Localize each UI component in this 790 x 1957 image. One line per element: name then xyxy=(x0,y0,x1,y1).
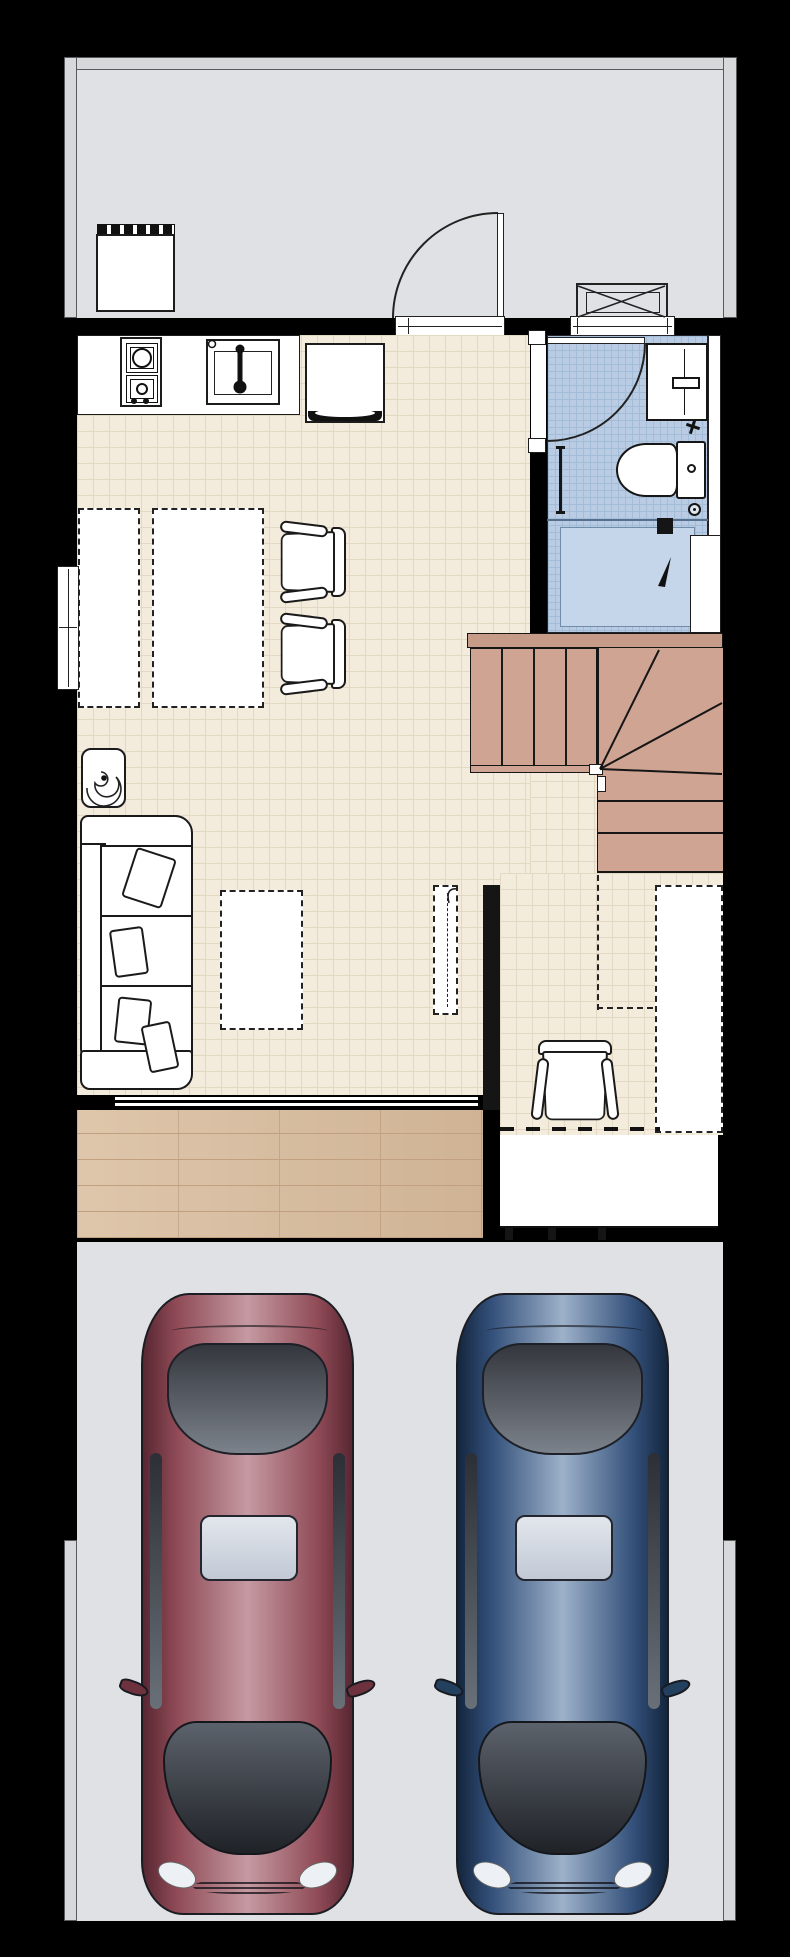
back-door-leaf[interactable] xyxy=(497,213,504,318)
door-jamb xyxy=(528,330,546,345)
car-side-window xyxy=(648,1453,660,1709)
washroom-inner-floor xyxy=(560,527,695,627)
car-windshield xyxy=(163,1721,332,1855)
red-car[interactable] xyxy=(141,1293,354,1915)
sofa-pillow xyxy=(109,926,149,978)
wall-pier xyxy=(657,518,673,534)
sliding-door-track[interactable] xyxy=(115,1103,478,1106)
sliding-door-track[interactable] xyxy=(115,1097,478,1100)
left-wall-window[interactable] xyxy=(57,566,79,690)
under-counter-appliance[interactable] xyxy=(305,343,385,423)
car-sunroof xyxy=(200,1515,298,1581)
back-door-threshold xyxy=(395,316,505,336)
entry-threshold-dashes xyxy=(500,1127,660,1131)
ac-unit-inner-frame xyxy=(586,292,660,313)
patio-wall-right xyxy=(723,57,737,318)
patio-wall-left xyxy=(64,57,77,318)
car-grille xyxy=(193,1879,305,1894)
stair-upper-flight[interactable] xyxy=(470,648,597,765)
door-jamb xyxy=(528,438,546,453)
blue-car[interactable] xyxy=(456,1293,669,1915)
coffee-table-planned[interactable] xyxy=(220,890,303,1030)
dining-chair-2[interactable] xyxy=(274,616,346,692)
car-rear-window xyxy=(167,1343,328,1455)
bathroom-door-leaf[interactable] xyxy=(547,337,645,344)
entrance-porch xyxy=(500,1135,718,1228)
tv-planned[interactable] xyxy=(433,885,458,1015)
ac-outdoor-unit[interactable] xyxy=(576,283,668,320)
floor-by-stairs xyxy=(530,765,597,875)
sink-basin xyxy=(214,351,272,395)
understair-outline xyxy=(597,875,599,1010)
bathroom-washroom-divider xyxy=(547,519,708,521)
bathroom-window[interactable] xyxy=(570,316,675,336)
car-side-window xyxy=(333,1453,345,1709)
stair-newel xyxy=(589,764,603,775)
towel-rail xyxy=(559,448,562,514)
washroom-door[interactable] xyxy=(690,535,721,633)
driveway-wall-right xyxy=(723,1540,736,1921)
car-side-window xyxy=(150,1453,162,1709)
shower-handle xyxy=(672,377,700,389)
stair-newel xyxy=(597,776,606,792)
dining-table-planned-right[interactable] xyxy=(152,508,264,708)
wood-deck xyxy=(77,1110,483,1238)
floor-plan-canvas xyxy=(0,0,790,1957)
potted-plant[interactable] xyxy=(81,748,126,808)
toilet-flush-button xyxy=(687,464,696,473)
stair-bottom-rail xyxy=(470,765,597,773)
floor-drain xyxy=(688,503,701,516)
car-grille xyxy=(508,1879,620,1894)
toilet-tank xyxy=(676,441,706,499)
bathroom-doorway xyxy=(531,345,546,438)
toilet-bowl[interactable] xyxy=(616,443,678,497)
patio-wall-top xyxy=(64,57,737,70)
gas-stove[interactable] xyxy=(120,337,162,407)
car-windshield xyxy=(478,1721,647,1855)
stair-lower-flight[interactable] xyxy=(597,772,723,873)
car-side-window xyxy=(465,1453,477,1709)
car-sunroof xyxy=(515,1515,613,1581)
stair-winders[interactable] xyxy=(597,648,723,772)
driveway-wall-left xyxy=(64,1540,77,1921)
stair-handrail xyxy=(467,633,723,648)
stove-burner xyxy=(126,343,158,373)
tv-wall-stub xyxy=(483,885,500,1110)
refrigerator[interactable] xyxy=(96,234,175,312)
foyer-armchair[interactable] xyxy=(535,1040,615,1132)
dining-chair-1[interactable] xyxy=(274,524,346,600)
dining-table-planned-left[interactable] xyxy=(78,508,140,708)
shower-unit[interactable] xyxy=(646,343,708,421)
understair-storage-planned[interactable] xyxy=(655,885,723,1133)
car-rear-window xyxy=(482,1343,643,1455)
kitchen-sink[interactable] xyxy=(206,339,280,405)
